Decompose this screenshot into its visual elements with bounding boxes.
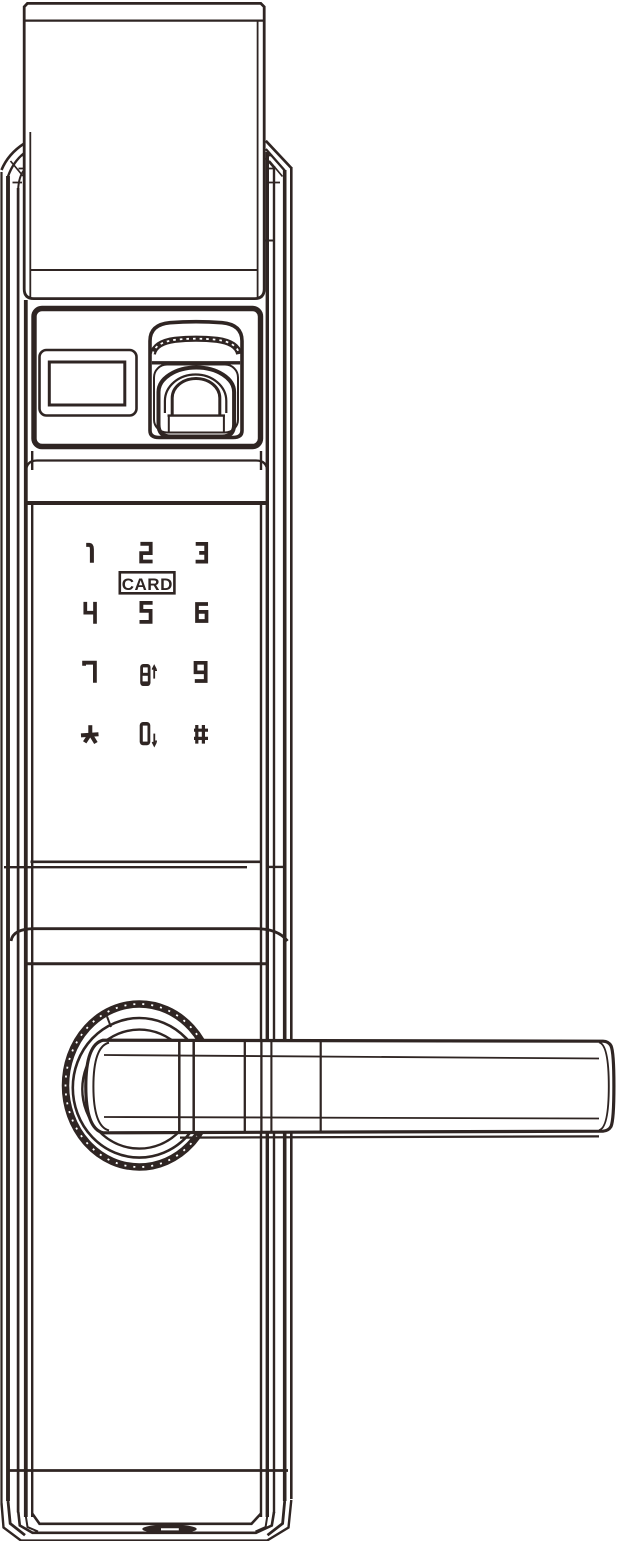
svg-text:CARD: CARD bbox=[122, 575, 173, 594]
